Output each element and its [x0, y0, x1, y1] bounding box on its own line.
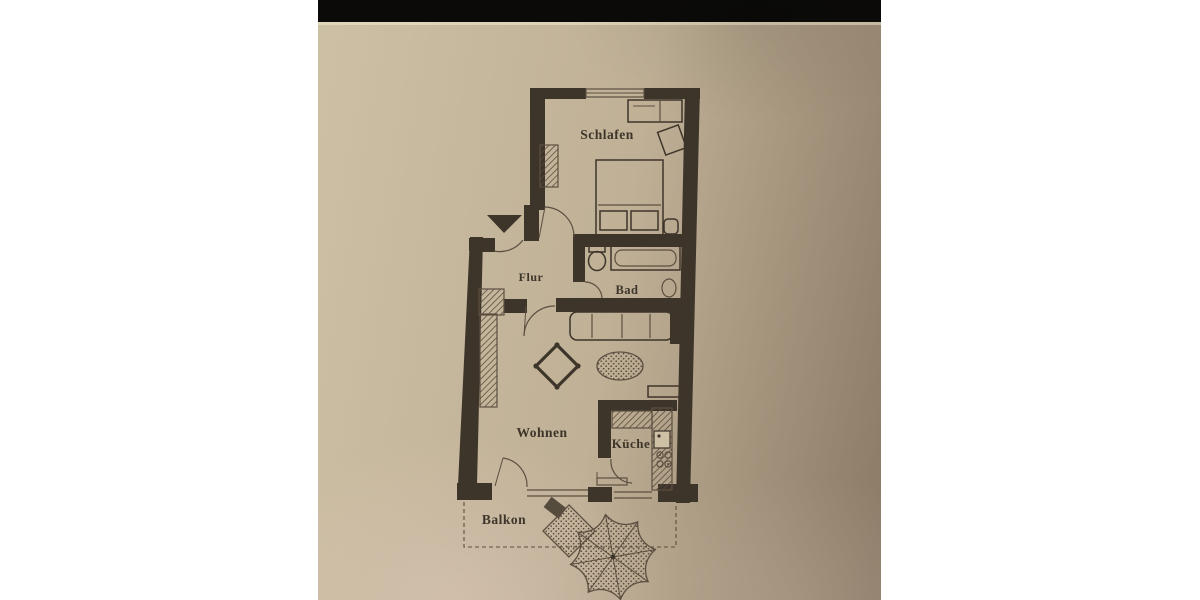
entrance-marker-icon [487, 215, 522, 233]
door-wohnen-balkon [495, 458, 527, 487]
wall-outer-left [458, 237, 483, 485]
door-bad [585, 282, 602, 298]
kitchen-sink [654, 431, 670, 448]
bathtub [611, 246, 680, 270]
wall-balcony-door-threshold [588, 487, 612, 502]
wall-bad-left [573, 234, 585, 282]
wall-bottom-left-corner [457, 483, 492, 500]
toilet [589, 246, 606, 271]
wall-entry-nib [482, 244, 495, 252]
wall-bad-top [573, 234, 685, 247]
kitchen-counter-top [612, 411, 652, 428]
door-kueche [611, 459, 632, 483]
wall-unit [480, 314, 497, 407]
bathroom-sink [662, 279, 676, 297]
page-background: Schlafen Flur Bad [0, 0, 1200, 600]
rug-oval [597, 352, 643, 380]
door-schlafen [539, 207, 574, 238]
floorplan-photo: Schlafen Flur Bad [318, 0, 881, 600]
door-flur-wohnen [524, 306, 555, 336]
room-label-kueche: Küche [612, 436, 651, 451]
room-label-bad: Bad [615, 283, 638, 297]
wall-flur-wohnen-divider [504, 299, 527, 313]
window-schlafen [586, 89, 644, 97]
coffee-table [533, 342, 580, 389]
room-bad: Bad [589, 246, 681, 297]
nightstand [664, 219, 678, 234]
door-entrance [494, 240, 523, 252]
room-label-schlafen: Schlafen [580, 127, 634, 142]
wall-nib-schlafen-door [524, 205, 539, 241]
bed [596, 160, 663, 235]
room-label-flur: Flur [519, 270, 544, 284]
wall-kueche-left [598, 400, 611, 458]
kitchen-counter-side [652, 408, 672, 490]
wardrobe [628, 100, 686, 155]
floor-plan-drawing: Schlafen Flur Bad [318, 0, 881, 600]
room-schlafen: Schlafen [540, 100, 686, 235]
dresser [540, 145, 558, 187]
hall-cabinet [479, 289, 504, 315]
sofa [570, 312, 673, 340]
room-label-wohnen: Wohnen [516, 425, 567, 440]
room-label-balkon: Balkon [482, 512, 526, 527]
wall-bad-bottom [556, 298, 685, 312]
door-kueche-balkon-leaf [597, 472, 627, 485]
room-balkon: Balkon [464, 497, 676, 600]
